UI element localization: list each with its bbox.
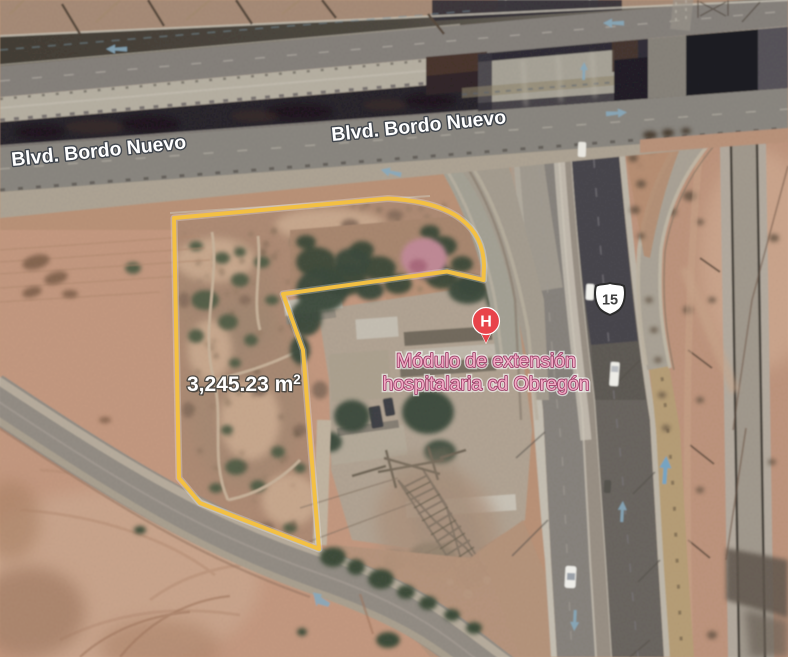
svg-text:hospitalaria cd Obregón: hospitalaria cd Obregón <box>382 373 589 395</box>
svg-text:H: H <box>480 314 492 331</box>
svg-text:Módulo de extensión: Módulo de extensión <box>396 350 576 372</box>
svg-text:3,245.23 m2: 3,245.23 m2 <box>187 372 301 396</box>
svg-text:15: 15 <box>602 293 618 309</box>
